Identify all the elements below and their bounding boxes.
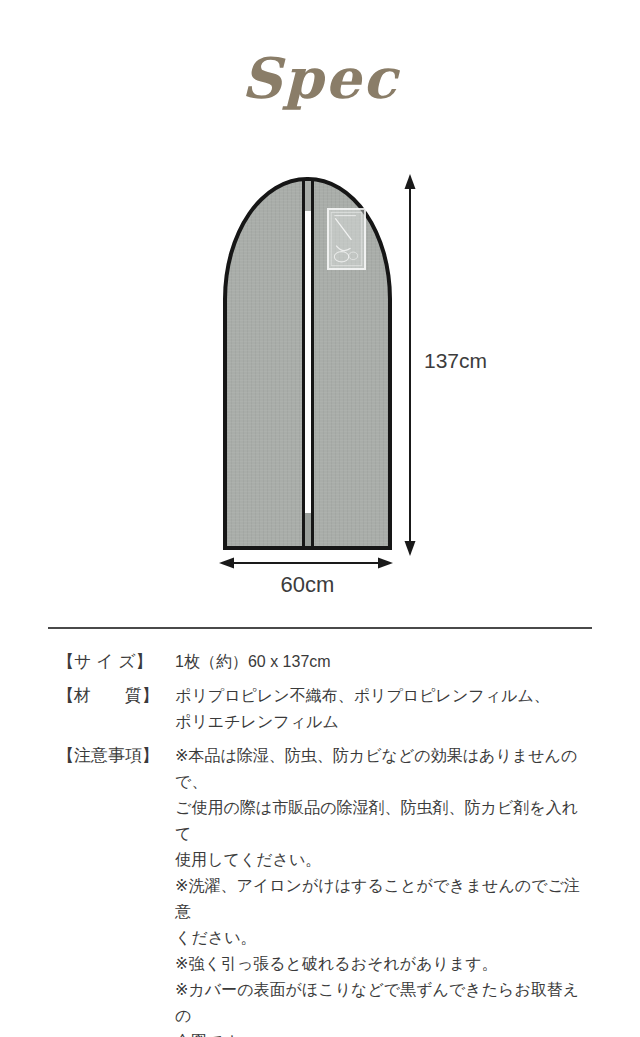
width-dimension-label: 60cm	[223, 572, 392, 598]
spec-value-material: ポリプロピレン不織布、ポリプロピレンフィルム、 ポリエチレンフィルム	[175, 683, 592, 735]
window-reflection-graphic	[329, 210, 364, 268]
spec-label-size: 【サ イ ズ】	[57, 649, 175, 675]
spec-table: 【サ イ ズ】 1枚（約）60 x 137cm 【材 質】 ポリプロピレン不織布…	[48, 627, 592, 1037]
height-dimension-label: 137cm	[424, 349, 487, 373]
spec-row-size: 【サ イ ズ】 1枚（約）60 x 137cm	[57, 649, 592, 675]
spec-page: Spec 137cm	[0, 0, 640, 1037]
spec-label-notes: 【注意事項】	[57, 743, 175, 769]
zipper	[302, 181, 314, 546]
spec-row-notes: 【注意事項】 ※本品は除湿、防虫、防カビなどの効果はありませんので、 ご使用の際…	[57, 743, 592, 1037]
garment-cover-illustration	[223, 177, 392, 550]
spec-value-notes: ※本品は除湿、防虫、防カビなどの効果はありませんので、 ご使用の際は市販品の除湿…	[175, 743, 592, 1037]
spec-row-material: 【材 質】 ポリプロピレン不織布、ポリプロピレンフィルム、 ポリエチレンフィルム	[57, 683, 592, 735]
zipper-slider	[305, 513, 311, 546]
spec-value-size: 1枚（約）60 x 137cm	[175, 649, 592, 675]
spec-table-body: 【サ イ ズ】 1枚（約）60 x 137cm 【材 質】 ポリプロピレン不織布…	[48, 629, 592, 1037]
clear-label-window	[327, 208, 366, 270]
zipper-top-stop	[305, 181, 311, 211]
width-dimension-arrow	[219, 553, 393, 573]
spec-label-material: 【材 質】	[57, 683, 175, 709]
height-dimension-arrow	[399, 174, 421, 556]
